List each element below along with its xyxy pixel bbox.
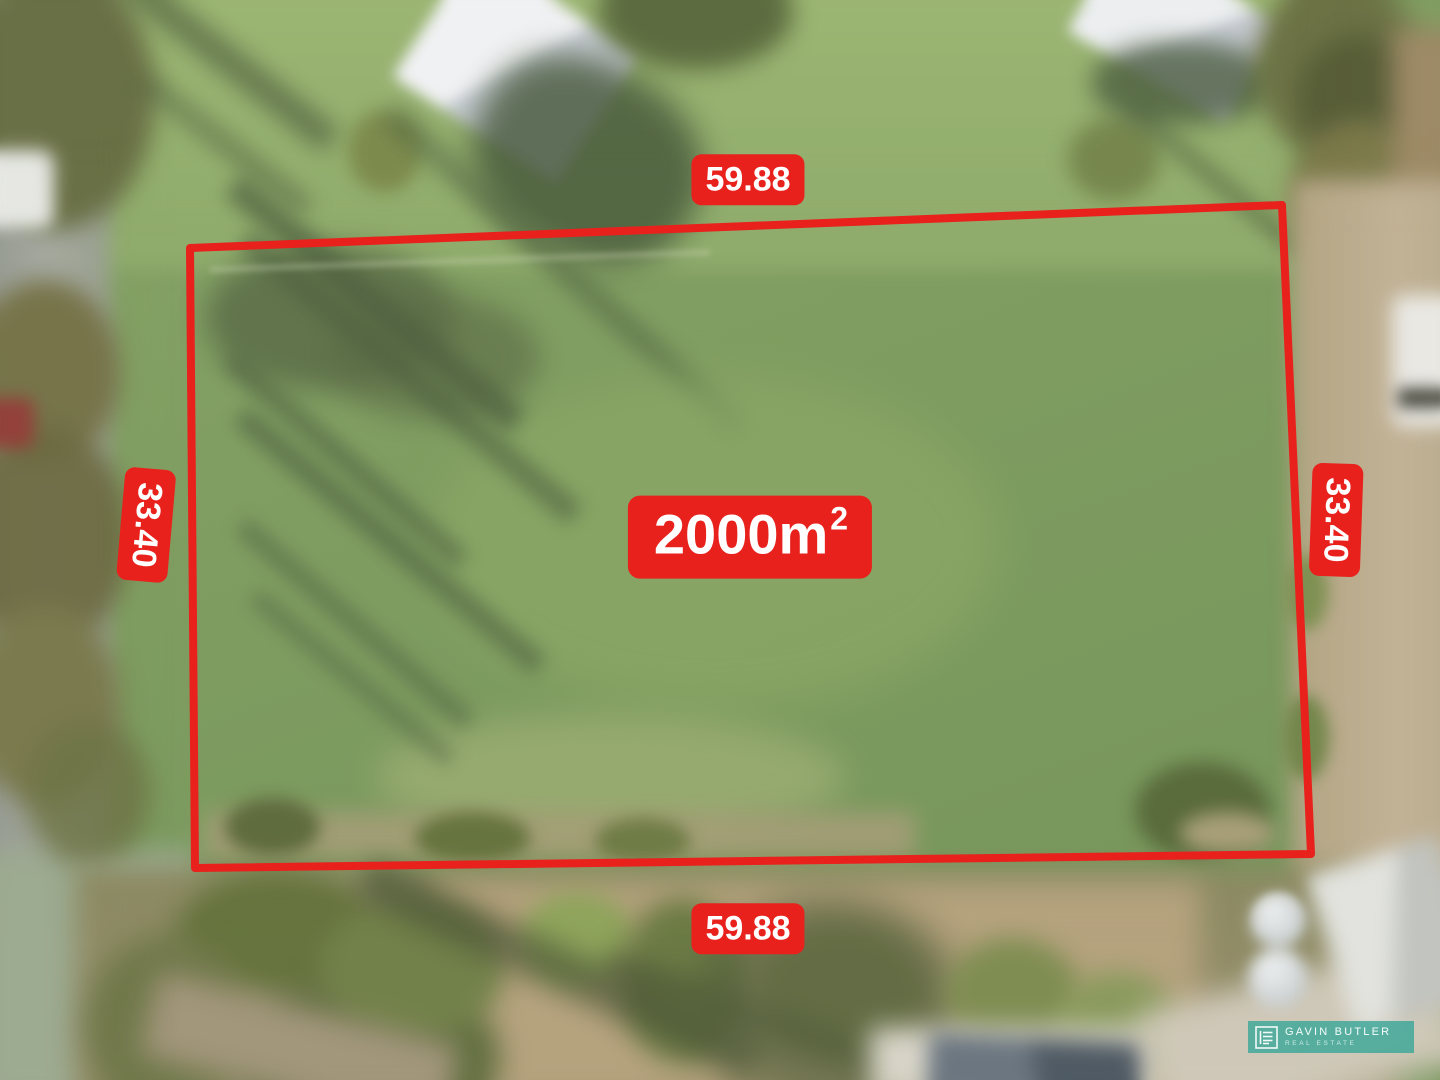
dimension-label-top: 59.88 — [691, 154, 804, 205]
gavin-butler-monogram-icon — [1255, 1026, 1278, 1049]
agency-name: GAVIN BUTLER — [1285, 1027, 1391, 1038]
area-value: 2000m — [654, 503, 828, 566]
area-label: 2000m2 — [628, 496, 872, 579]
agency-name-block: GAVIN BUTLER REAL ESTATE — [1285, 1027, 1391, 1047]
area-exponent: 2 — [830, 501, 848, 537]
dimension-label-bottom: 59.88 — [691, 903, 804, 954]
dimension-label-left: 33.40 — [115, 466, 176, 583]
agency-tagline: REAL ESTATE — [1285, 1041, 1391, 1048]
agency-watermark: GAVIN BUTLER REAL ESTATE — [1248, 1021, 1414, 1053]
dimension-label-right: 33.40 — [1308, 463, 1363, 578]
aerial-photo-scene: 59.88 59.88 33.40 33.40 2000m2 GAVIN BUT… — [0, 0, 1440, 1080]
